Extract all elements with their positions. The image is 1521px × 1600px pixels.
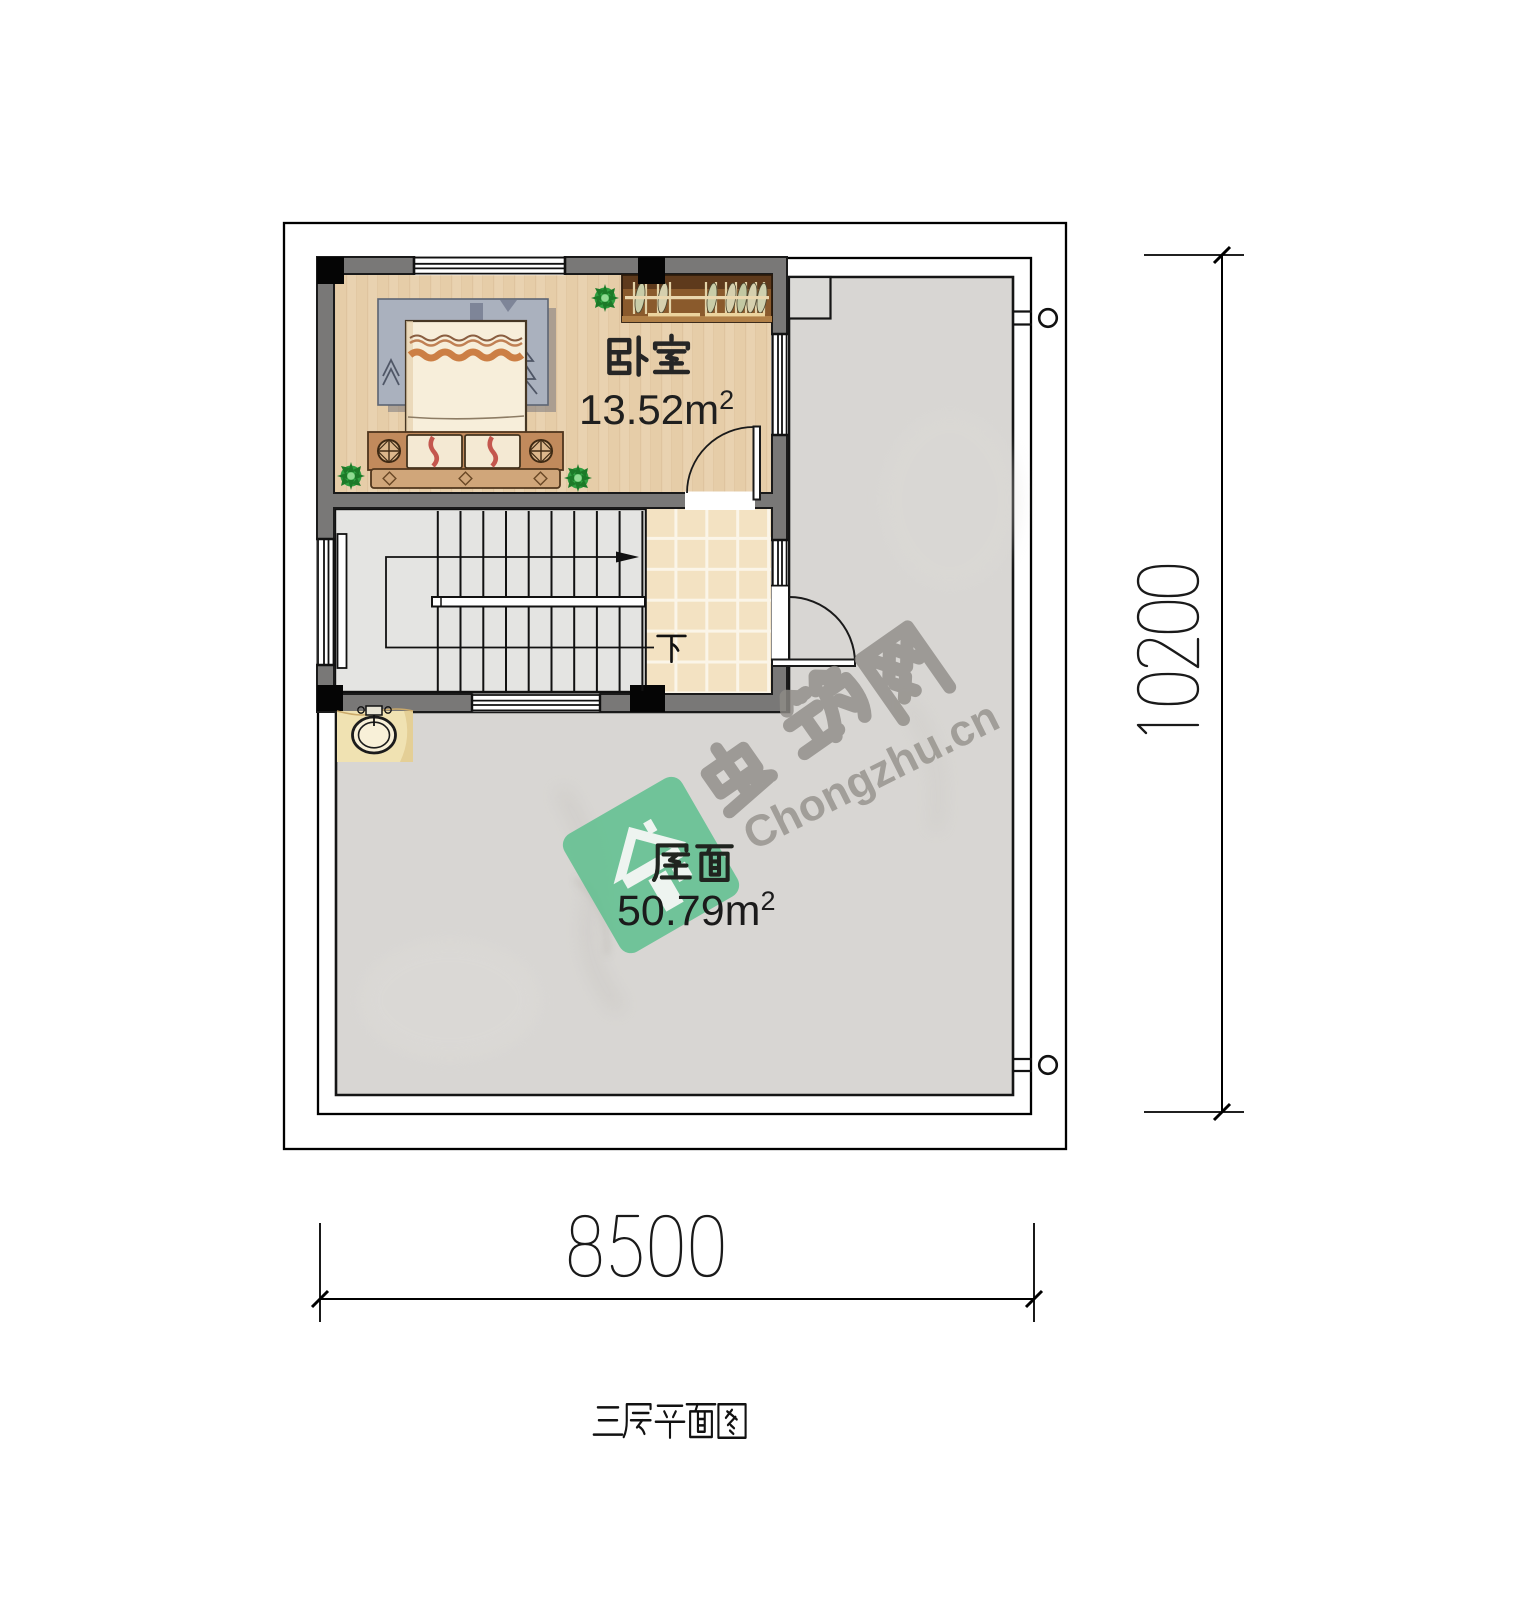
- svg-text:13.52m2: 13.52m2: [579, 385, 734, 433]
- svg-text:50.79m2: 50.79m2: [617, 886, 775, 935]
